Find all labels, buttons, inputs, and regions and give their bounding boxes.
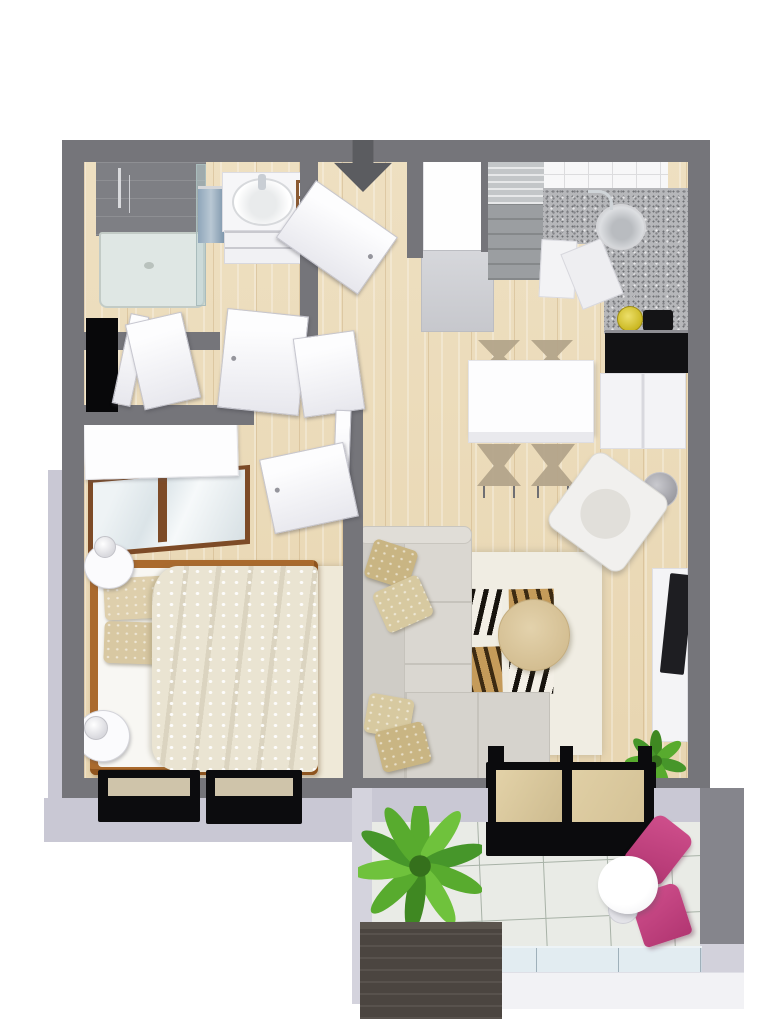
balcony-palm-plant: [358, 806, 482, 926]
balcony-wall-right: [700, 788, 744, 950]
storage-box: [360, 922, 502, 1019]
bistro-table: [598, 856, 658, 914]
floorplan: [0, 0, 773, 1024]
room-balcony: [0, 0, 773, 1024]
